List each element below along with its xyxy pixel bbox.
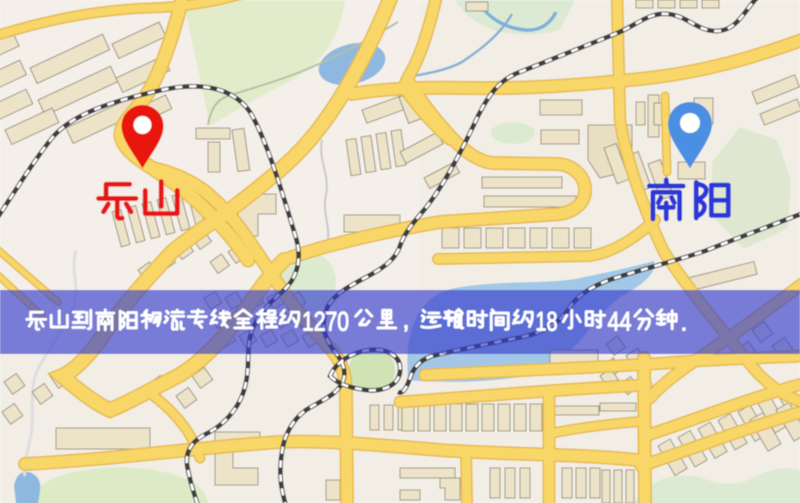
svg-text:1270: 1270 <box>302 307 349 337</box>
svg-text:,: , <box>403 306 410 334</box>
svg-text:18: 18 <box>536 307 558 337</box>
svg-text:.: . <box>681 310 688 337</box>
svg-text:44: 44 <box>608 307 632 337</box>
